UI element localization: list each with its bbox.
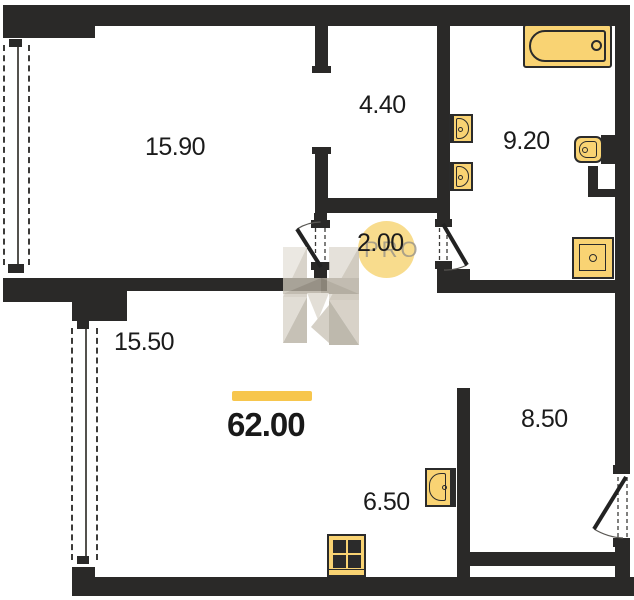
wall-kitchen-entry [457, 388, 470, 577]
bathtub-drain [591, 40, 602, 51]
washbasin-icon [449, 162, 473, 191]
wall-top-left-block [3, 5, 95, 38]
window-bedroom [71, 328, 98, 560]
total-area-accent-bar [232, 391, 312, 401]
washbasin-icon [449, 114, 473, 143]
wall-bottom-left-block [72, 567, 95, 596]
toilet-drain [582, 147, 588, 153]
window-cap [9, 39, 22, 47]
watermark-logo-icon [281, 245, 361, 345]
room-label-kitchen: 6.50 [363, 488, 410, 517]
window-cap [8, 264, 24, 273]
wall-exterior-right-upper [615, 5, 630, 473]
shower-drain [589, 254, 597, 262]
window-pane [85, 328, 87, 560]
window-cap [77, 556, 89, 564]
room-label-living: 15.90 [145, 133, 205, 162]
wall-cap [312, 66, 331, 73]
window-cap [77, 321, 89, 329]
bathtub-icon [523, 24, 612, 68]
stove-icon [327, 534, 366, 577]
wall-exterior-top [3, 5, 630, 26]
room-label-hall: 2.00 [357, 229, 404, 258]
kitchen-sink-icon [425, 468, 456, 507]
burner [348, 555, 361, 568]
burner [333, 555, 346, 568]
shower-icon [572, 237, 614, 279]
room-label-entry: 8.50 [521, 405, 568, 434]
toilet-tank [601, 135, 616, 164]
wall-step-block [72, 302, 127, 321]
window-living [3, 45, 30, 265]
door-jamb [311, 220, 330, 228]
door-jamb [435, 261, 452, 269]
wall-exterior-bottom [95, 577, 634, 596]
door-jamb [613, 538, 630, 547]
stove-front [329, 569, 364, 575]
room-label-wardrobe: 4.40 [359, 91, 406, 120]
basin-drain [458, 127, 463, 132]
wall-closet-bottom [315, 198, 448, 213]
sink-drain [442, 485, 447, 490]
basin-drain [458, 175, 463, 180]
wall-entry-bottom [457, 552, 630, 566]
toilet-icon [574, 136, 603, 163]
window-pane [17, 45, 19, 265]
burner [333, 540, 346, 553]
room-label-bathroom: 9.20 [503, 127, 550, 156]
door-jamb [613, 465, 630, 474]
floor-plan: PRO 15.90 4.40 9.20 2.00 15.50 8.50 6.50… [0, 0, 634, 600]
wall-bathroom-bottom [437, 280, 615, 293]
burner [348, 540, 361, 553]
total-area-label: 62.00 [227, 406, 305, 444]
wall-cap [312, 147, 331, 154]
room-label-bedroom: 15.50 [114, 328, 174, 357]
wall-mid-thick [3, 278, 127, 302]
vent-shaft-wall [588, 189, 615, 197]
door-jamb [435, 219, 452, 227]
